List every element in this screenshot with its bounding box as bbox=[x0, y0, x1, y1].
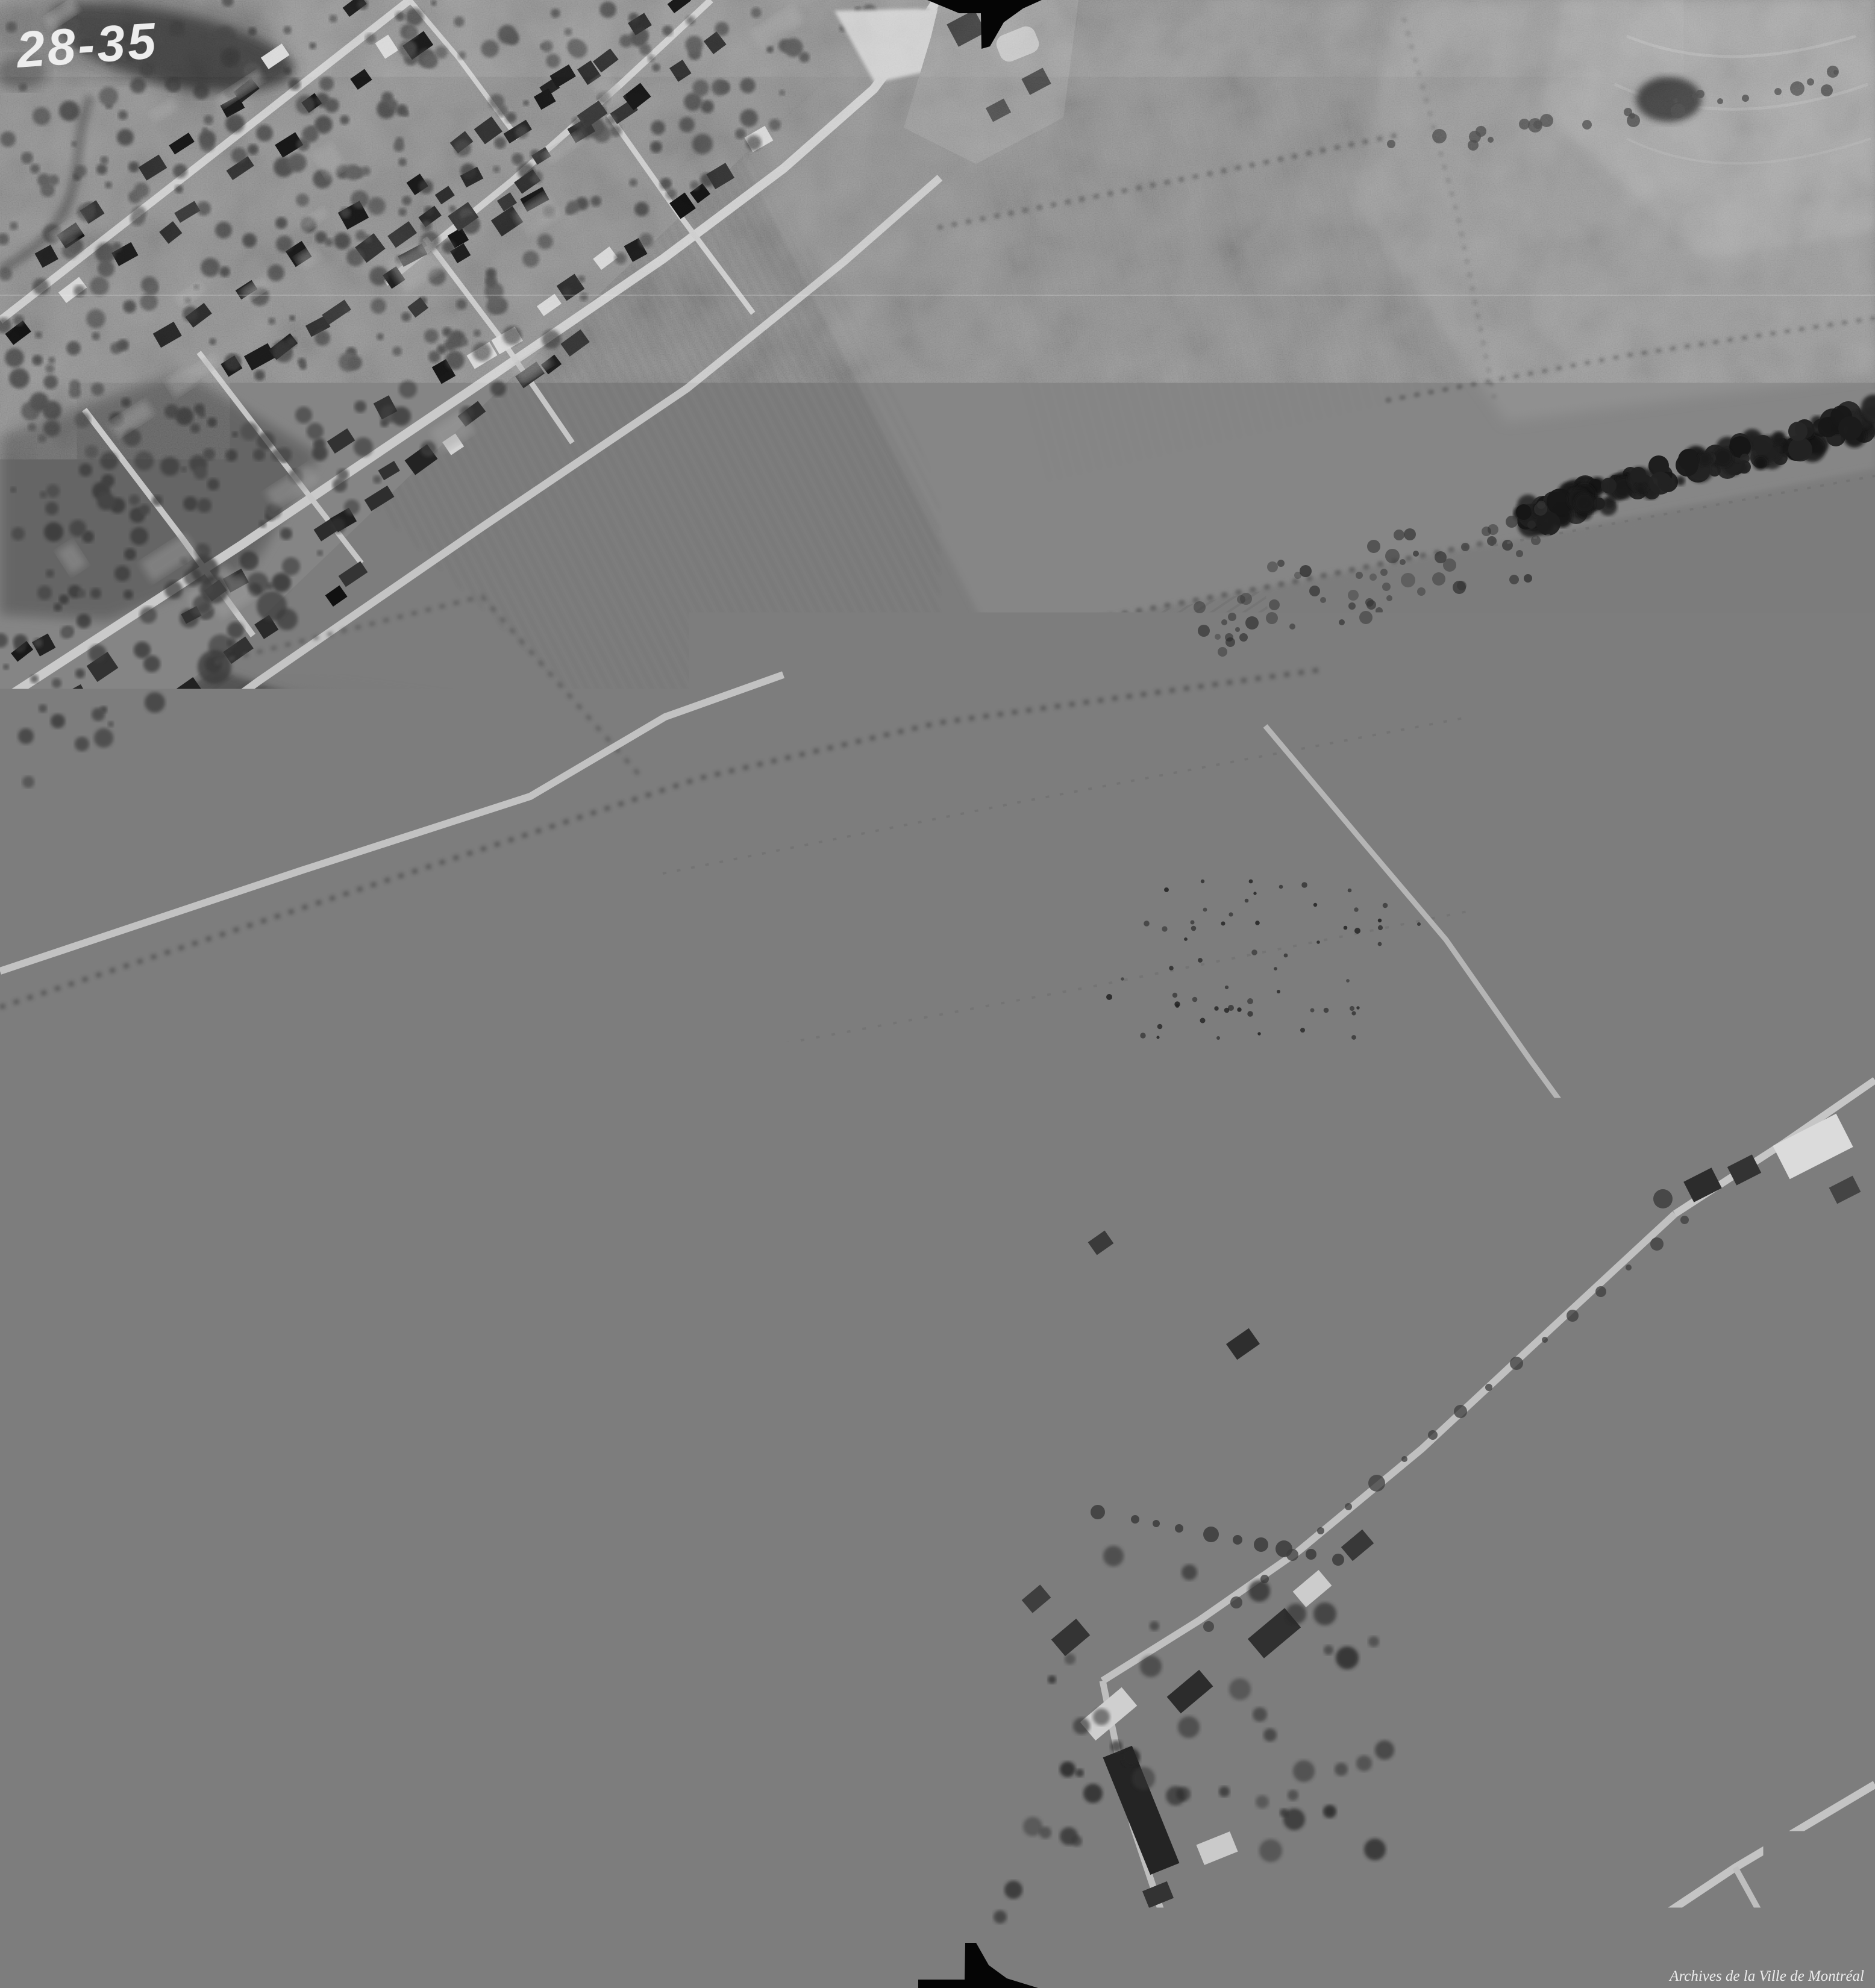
svg-text:28-35: 28-35 bbox=[13, 12, 160, 78]
svg-text:Archives de la Ville de Montré: Archives de la Ville de Montréal bbox=[1668, 1968, 1864, 1984]
